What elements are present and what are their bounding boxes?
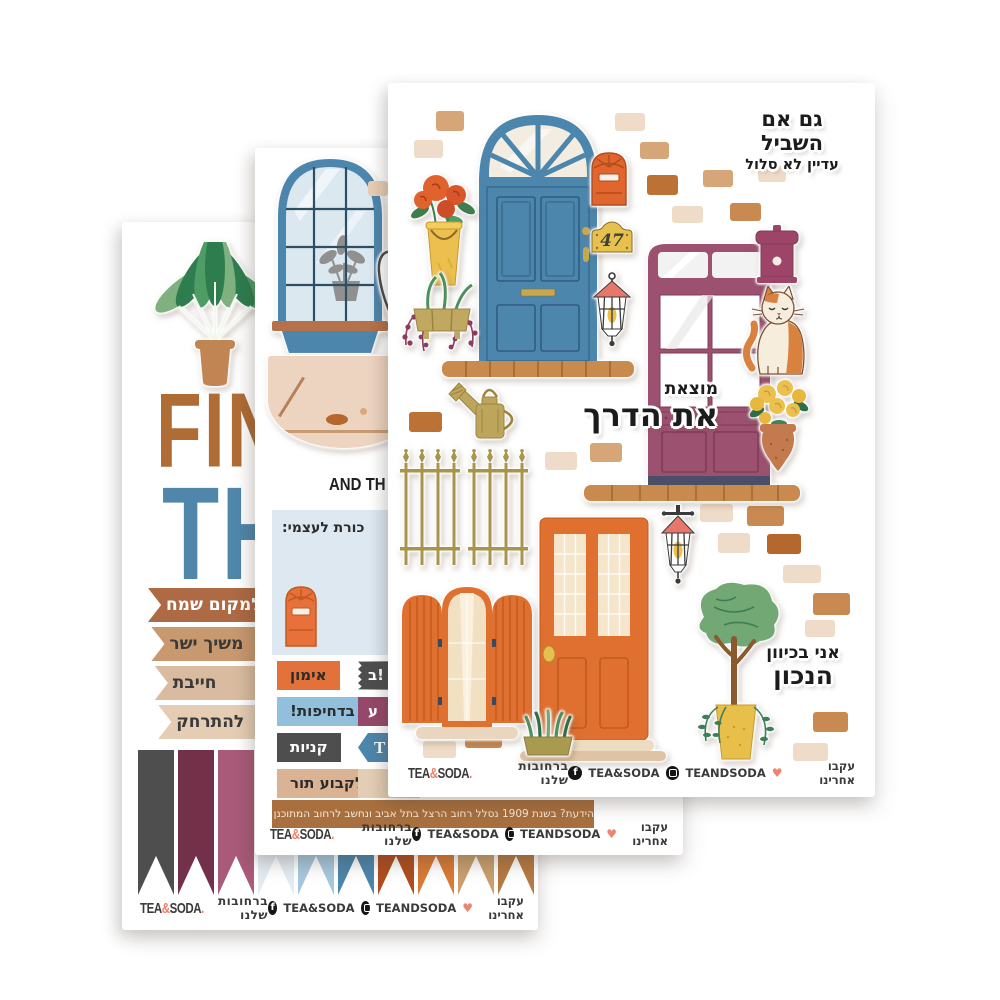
label-sticker: קניות <box>277 733 341 762</box>
facebook-label: TEA&SODA <box>427 827 498 841</box>
front-sheet-footer: TEA&SODA. ברחובות שלנו f TEA&SODA TEANDS… <box>388 759 875 787</box>
facebook-label: TEA&SODA <box>283 901 354 915</box>
back-sheet-footer: TEA&SODA. ברחובות שלנו f TEA&SODA TEANDS… <box>122 894 538 922</box>
rose-pot-sticker <box>743 376 813 476</box>
bottom-text-line1: אני בכיוון <box>761 643 845 663</box>
pennant-flag <box>138 750 174 895</box>
grass-planter-sticker <box>518 707 578 759</box>
brand-logo: TEA&SODA. <box>140 900 204 917</box>
english-fragment: AND TH <box>329 475 393 495</box>
window-box-plant-sticker <box>398 267 484 355</box>
brand-logo: TEA&SODA. <box>270 826 334 843</box>
brick <box>640 142 669 159</box>
baguette-illustration <box>278 377 305 418</box>
brick <box>423 741 456 758</box>
follow-label: עקבו אחרינו <box>789 759 855 787</box>
front-sticker-sheet: גם אם השביל עדיין לא סלול <box>388 83 875 797</box>
brick <box>368 181 388 196</box>
heart-icon: ♥ <box>462 901 473 915</box>
instagram-label: TEANDSODA <box>685 766 765 780</box>
brick <box>730 203 761 221</box>
middle-sheet-footer: TEA&SODA. ברחובות שלנו f TEA&SODA TEANDS… <box>255 820 683 848</box>
cat-sticker <box>740 286 812 378</box>
mid-text-line2: את הדרך <box>583 399 718 433</box>
brick <box>545 452 577 470</box>
brick <box>805 620 835 637</box>
sheet-title-sticker: גם אם השביל עדיין לא סלול <box>727 107 857 173</box>
mini-mailbox-illustration <box>283 584 319 648</box>
mid-text-sticker: מוצאת את הדרך <box>583 379 718 433</box>
bread-illustration <box>326 414 348 425</box>
bottom-text-line2: הנכון <box>761 663 845 689</box>
heart-icon: ♥ <box>606 827 617 841</box>
brick <box>718 533 750 553</box>
brick <box>747 506 784 526</box>
instagram-label: TEANDSODA <box>376 901 456 915</box>
collection-name: ברחובות שלנו <box>218 894 268 922</box>
brick <box>647 175 678 195</box>
purple-mailbox-sticker <box>754 223 800 285</box>
title-line1: גם אם השביל <box>727 107 857 155</box>
pennant-flag <box>218 750 254 895</box>
brick <box>783 565 821 583</box>
brick <box>414 140 443 158</box>
watering-can-sticker <box>446 379 522 443</box>
facebook-icon: f <box>568 766 582 780</box>
heart-icon: ♥ <box>772 766 783 780</box>
social-links: f TEA&SODA TEANDSODA ♥ עקבו אחרינו <box>412 820 668 848</box>
follow-label: עקבו אחרינו <box>623 820 668 848</box>
social-links: f TEA&SODA TEANDSODA ♥ עקבו אחרינו <box>268 894 524 922</box>
brick <box>700 504 733 522</box>
brick <box>767 534 801 554</box>
instagram-icon <box>666 766 680 780</box>
instagram-icon <box>505 827 514 841</box>
brick <box>813 593 850 615</box>
product-mockup-canvas: FIN TH תי למקום שמחמשיך ישרחייבתלהתרחק T… <box>0 0 1000 1000</box>
brick <box>409 412 442 432</box>
instagram-label: TEANDSODA <box>520 827 600 841</box>
instagram-icon <box>361 901 370 915</box>
gate-sticker <box>398 449 462 571</box>
facebook-icon: f <box>412 827 421 841</box>
shuttered-window-sticker <box>400 581 534 741</box>
facebook-label: TEA&SODA <box>588 766 659 780</box>
label-sticker: אימון <box>277 661 340 690</box>
collection-name: ברחובות שלנו <box>348 820 412 848</box>
collection-name: ברחובות שלנו <box>486 759 569 787</box>
plate-illustration <box>360 408 367 415</box>
social-links: f TEA&SODA TEANDSODA ♥ עקבו אחרינו <box>568 759 855 787</box>
label-sticker: בדחיפות! <box>277 697 368 726</box>
facebook-icon: f <box>268 901 277 915</box>
note-title-fragment: כורת לעצמי: <box>282 520 364 536</box>
pennant-flag <box>178 750 214 895</box>
brick <box>672 206 703 223</box>
bottom-text-sticker: אני בכיוון הנכון <box>761 643 845 689</box>
brand-logo: TEA&SODA. <box>408 765 472 782</box>
brick <box>813 712 848 732</box>
title-line2: עדיין לא סלול <box>727 157 857 173</box>
follow-label: עקבו אחרינו <box>479 894 524 922</box>
orange-mailbox-sticker <box>588 149 630 207</box>
